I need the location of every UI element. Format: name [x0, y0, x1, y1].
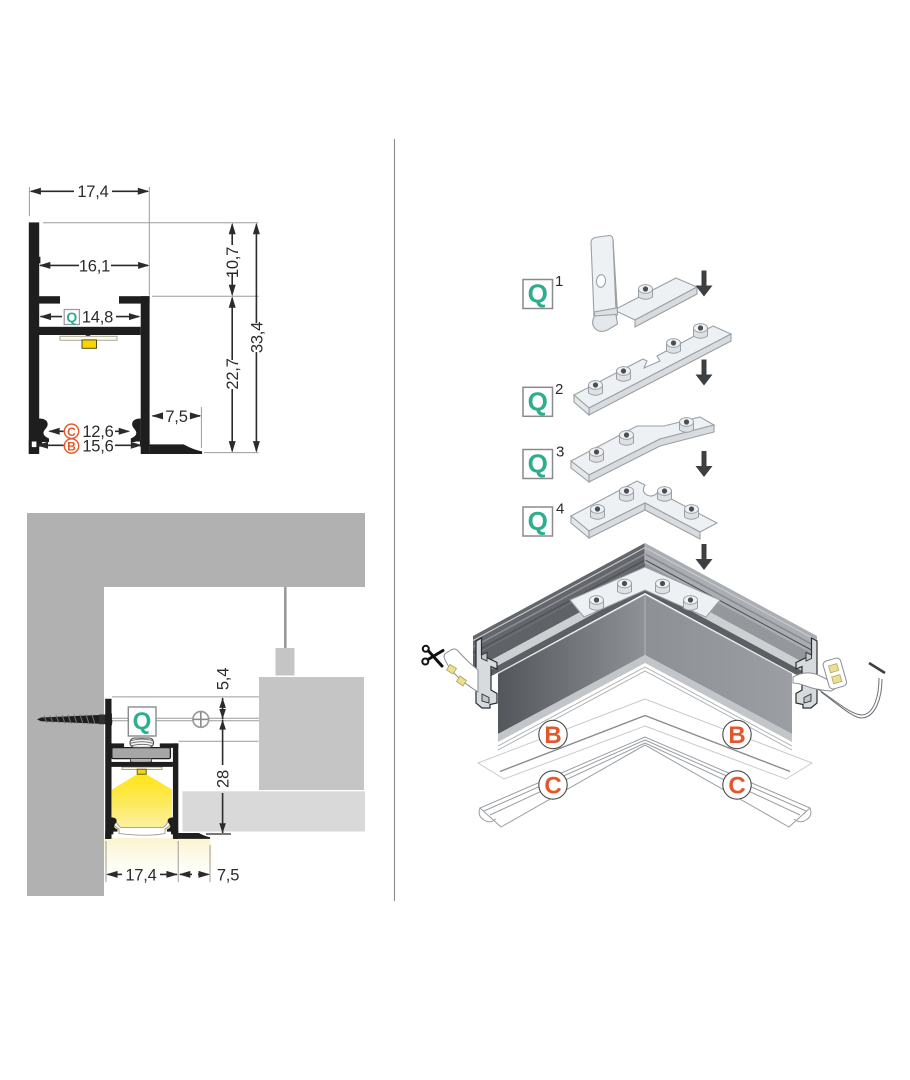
svg-text:14,8: 14,8 — [82, 309, 113, 327]
svg-text:Q: Q — [528, 506, 548, 536]
svg-text:16,1: 16,1 — [79, 257, 110, 275]
svg-text:5,4: 5,4 — [215, 668, 233, 690]
svg-text:22,7: 22,7 — [224, 358, 242, 389]
svg-text:4: 4 — [556, 501, 564, 518]
svg-text:C: C — [728, 773, 745, 800]
svg-text:B: B — [728, 722, 745, 749]
svg-text:Q: Q — [528, 449, 548, 479]
svg-text:33,4: 33,4 — [248, 322, 266, 353]
svg-text:7,5: 7,5 — [165, 408, 187, 426]
svg-text:1: 1 — [555, 273, 563, 290]
svg-text:C: C — [544, 773, 561, 800]
svg-text:B: B — [544, 722, 561, 749]
svg-text:10,7: 10,7 — [224, 247, 242, 278]
svg-text:15,6: 15,6 — [82, 437, 113, 455]
svg-text:17,4: 17,4 — [125, 866, 156, 884]
svg-text:C: C — [67, 425, 76, 439]
svg-text:B: B — [67, 440, 76, 454]
svg-text:Q: Q — [528, 386, 548, 416]
svg-text:3: 3 — [556, 444, 564, 461]
svg-text:17,4: 17,4 — [77, 183, 108, 201]
svg-text:Q: Q — [133, 708, 152, 735]
svg-text:2: 2 — [555, 381, 563, 398]
svg-text:Q: Q — [66, 309, 77, 325]
svg-text:7,5: 7,5 — [217, 866, 239, 884]
svg-text:Q: Q — [528, 279, 548, 309]
svg-text:28: 28 — [215, 770, 233, 788]
